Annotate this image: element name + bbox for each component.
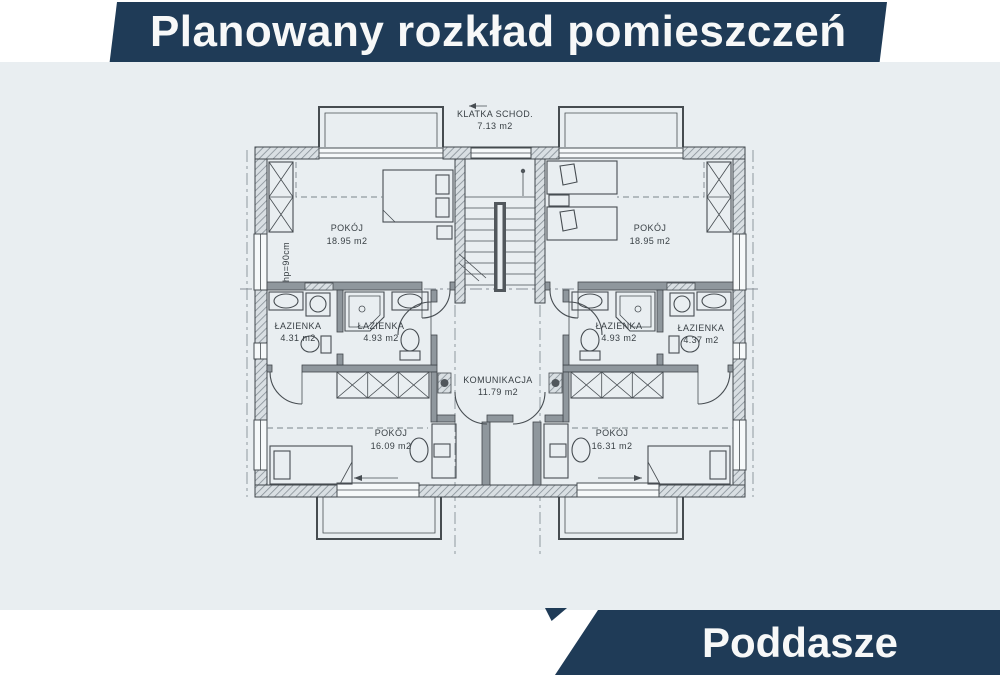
room-area-pokoj-bottom-left: 16.09 m2 — [371, 441, 412, 451]
room-area-klatka-schodowa: 7.13 m2 — [477, 121, 512, 131]
room-area-lazienka-3: 4.93 m2 — [601, 333, 636, 343]
room-label-lazienka-3: ŁAZIENKA — [596, 321, 643, 331]
floor-plan: KLATKA SCHOD. 7.13 m2 POKÓJ 18.95 m2 POK… — [0, 0, 1000, 675]
staircase — [455, 159, 545, 303]
room-area-pokoj-bottom-right: 16.31 m2 — [592, 441, 633, 451]
room-area-komunikacja: 11.79 m2 — [478, 387, 518, 397]
title-banner: Planowany rozkład pomieszczeń — [110, 2, 887, 62]
room-label-lazienka-1: ŁAZIENKA — [275, 321, 322, 331]
room-area-pokoj-top-left: 18.95 m2 — [327, 236, 368, 246]
room-label-pokoj-bottom-right: POKÓJ — [596, 428, 629, 438]
room-label-lazienka-2: ŁAZIENKA — [358, 321, 405, 331]
title-banner-inner: Planowany rozkład pomieszczeń — [113, 7, 883, 57]
page-title: Planowany rozkład pomieszczeń — [150, 7, 847, 56]
room-label-pokoj-top-right: POKÓJ — [634, 223, 667, 233]
room-label-komunikacja: KOMUNIKACJA — [463, 375, 532, 385]
floor-label: Poddasze — [640, 610, 960, 675]
room-label-pokoj-top-left: POKÓJ — [331, 223, 364, 233]
room-label-lazienka-4: ŁAZIENKA — [678, 323, 725, 333]
room-area-lazienka-2: 4.93 m2 — [363, 333, 398, 343]
page: { "header": { "title": "Planowany rozkła… — [0, 0, 1000, 675]
room-area-lazienka-1: 4.31 m2 — [280, 333, 315, 343]
windows — [254, 148, 746, 497]
room-label-klatka-schodowa: KLATKA SCHOD. — [457, 109, 533, 119]
room-area-lazienka-4: 4.37 m2 — [683, 335, 718, 345]
room-area-pokoj-top-right: 18.95 m2 — [630, 236, 671, 246]
knee-wall-height-annotation: hp=90cm — [281, 242, 291, 282]
room-label-pokoj-bottom-left: POKÓJ — [375, 428, 408, 438]
outer-walls — [255, 147, 745, 497]
